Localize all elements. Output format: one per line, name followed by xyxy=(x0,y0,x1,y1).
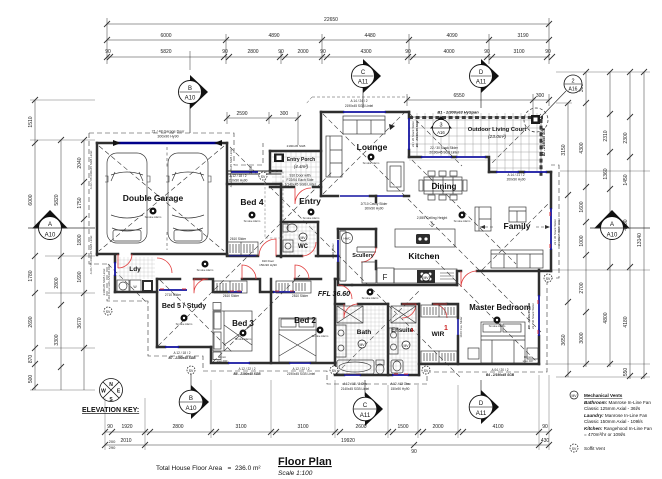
svg-text:2000: 2000 xyxy=(432,424,443,430)
svg-text:22650: 22650 xyxy=(324,17,338,23)
svg-text:Bed 2: Bed 2 xyxy=(294,316,316,325)
svg-text:1450: 1450 xyxy=(623,174,629,185)
svg-text:A 04 / 20 / 2: A 04 / 20 / 2 xyxy=(491,368,508,372)
svg-text:Smoke Alarm: Smoke Alarm xyxy=(176,322,193,326)
svg-text:90: 90 xyxy=(107,424,113,430)
svg-text:A 12 / 22 / 2: A 12 / 22 / 2 xyxy=(238,367,255,371)
svg-text:1800: 1800 xyxy=(77,234,83,245)
svg-text:WIR: WIR xyxy=(432,331,445,338)
svg-text:2310: 2310 xyxy=(603,130,609,141)
svg-text:SV: SV xyxy=(546,277,551,281)
svg-text:MV: MV xyxy=(423,276,429,280)
svg-text:3100: 3100 xyxy=(297,424,308,430)
svg-text:MV: MV xyxy=(359,343,365,347)
svg-text:A 14 / 24 / 2: A 14 / 24 / 2 xyxy=(350,99,367,103)
svg-text:500: 500 xyxy=(28,375,34,384)
svg-text:550: 550 xyxy=(623,368,629,377)
svg-text:A 12 / 18 / 2 Obs: A 12 / 18 / 2 Obs xyxy=(343,382,367,386)
svg-text:2190x45 SGB Lintel: 2190x45 SGB Lintel xyxy=(345,104,374,108)
svg-text:Smoke Alarm: Smoke Alarm xyxy=(454,219,471,223)
svg-text:D: D xyxy=(479,400,484,407)
svg-text:2,555 Ceiling Height: 2,555 Ceiling Height xyxy=(417,216,448,220)
svg-text:5820: 5820 xyxy=(54,194,60,205)
svg-text:2040: 2040 xyxy=(77,157,83,168)
svg-text:A16: A16 xyxy=(437,130,445,135)
svg-text:4480: 4480 xyxy=(364,33,375,39)
svg-text:2/190x45 SGB Lintel: 2/190x45 SGB Lintel xyxy=(429,151,459,155)
svg-text:2700: 2700 xyxy=(579,282,585,293)
svg-text:4090: 4090 xyxy=(446,33,457,39)
svg-text:290: 290 xyxy=(109,445,116,450)
svg-text:Smoke Alarm: Smoke Alarm xyxy=(197,268,214,272)
svg-text:1000: 1000 xyxy=(579,235,585,246)
svg-text:13140: 13140 xyxy=(637,233,643,247)
svg-text:B2 - 2/190x45 SGB: B2 - 2/190x45 SGB xyxy=(542,127,546,156)
svg-text:B4 - 2/190x45 SGB: B4 - 2/190x45 SGB xyxy=(486,373,515,377)
svg-text:3: 3 xyxy=(439,123,442,129)
svg-text:Lounge: Lounge xyxy=(357,142,388,152)
svg-text:870: 870 xyxy=(28,355,34,364)
svg-text:B6 - 2/190x45 SGB: B6 - 2/190x45 SGB xyxy=(415,120,419,147)
svg-text:(4.4m²): (4.4m²) xyxy=(294,164,309,169)
svg-text:Floor Plan: Floor Plan xyxy=(278,456,332,468)
svg-text:90: 90 xyxy=(222,49,228,55)
svg-text:2590: 2590 xyxy=(236,111,247,117)
svg-text:B1 - 2/300x63 HySpan: B1 - 2/300x63 HySpan xyxy=(437,110,479,115)
svg-text:Entry: Entry xyxy=(299,196,321,206)
svg-text:SV: SV xyxy=(106,310,111,314)
svg-text:2300: 2300 xyxy=(623,132,629,143)
svg-text:300x90 Hy90: 300x90 Hy90 xyxy=(365,207,384,211)
svg-text:A 14 / 21 / 2: A 14 / 21 / 2 xyxy=(507,173,524,177)
svg-text:Smoke Alarm: Smoke Alarm xyxy=(145,215,162,219)
svg-text:B7 - 2190x45 SGB: B7 - 2190x45 SGB xyxy=(168,356,196,360)
svg-text:1510: 1510 xyxy=(28,116,34,127)
svg-text:A: A xyxy=(610,222,614,228)
svg-text:5820: 5820 xyxy=(160,49,171,55)
svg-text:3190: 3190 xyxy=(517,33,528,39)
svg-text:MV: MV xyxy=(300,236,306,240)
svg-text:A 12 / 18 / 2: A 12 / 18 / 2 xyxy=(173,351,190,355)
svg-text:step DP: step DP xyxy=(523,359,534,363)
svg-text:200: 200 xyxy=(109,439,116,444)
svg-text:4000: 4000 xyxy=(443,49,454,55)
svg-text:SV: SV xyxy=(189,369,194,373)
svg-text:3100: 3100 xyxy=(235,424,246,430)
svg-text:90: 90 xyxy=(545,49,551,55)
svg-text:FFL 36.60: FFL 36.60 xyxy=(318,291,350,298)
svg-text:1/140x45 SGB Lintel: 1/140x45 SGB Lintel xyxy=(284,183,315,187)
svg-text:2: 2 xyxy=(571,79,574,85)
svg-text:C: C xyxy=(361,70,366,76)
svg-text:90: 90 xyxy=(405,49,411,55)
svg-text:6000: 6000 xyxy=(160,33,171,39)
svg-text:300x90 Hy90: 300x90 Hy90 xyxy=(157,135,178,139)
svg-text:4800: 4800 xyxy=(603,312,609,323)
svg-text:150x90 Hy90: 150x90 Hy90 xyxy=(391,387,410,391)
svg-text:C: C xyxy=(363,402,368,409)
svg-text:2610 Slider: 2610 Slider xyxy=(223,294,240,298)
svg-text:B8 - 2/190x45 SGB: B8 - 2/190x45 SGB xyxy=(527,302,531,329)
svg-text:21 / 48 Garage Door: 21 / 48 Garage Door xyxy=(152,130,186,134)
svg-text:1500: 1500 xyxy=(397,424,408,430)
svg-text:2800: 2800 xyxy=(54,277,60,288)
svg-text:3000: 3000 xyxy=(579,332,585,343)
svg-text:1150: 1150 xyxy=(249,166,253,174)
svg-text:300: 300 xyxy=(280,111,289,117)
svg-text:2800: 2800 xyxy=(247,49,258,55)
svg-text:2190x45 SGB Lintel: 2190x45 SGB Lintel xyxy=(287,372,316,376)
svg-text:150x90 Hy90: 150x90 Hy90 xyxy=(259,263,277,267)
svg-text:ELEVATION KEY:: ELEVATION KEY: xyxy=(82,407,139,414)
svg-text:2/290x45 SGB Lintel: 2/290x45 SGB Lintel xyxy=(557,218,561,246)
svg-text:A10: A10 xyxy=(185,96,196,102)
svg-text:2190x45 SGB: 2190x45 SGB xyxy=(287,144,306,148)
svg-text:Scale 1:100: Scale 1:100 xyxy=(278,470,313,477)
svg-text:A11: A11 xyxy=(476,410,487,417)
svg-text:A11: A11 xyxy=(358,80,369,86)
svg-text:D: D xyxy=(479,70,484,76)
svg-text:410 Door with A/S306 Obs: 410 Door with A/S306 Obs xyxy=(107,264,111,300)
svg-text:A: A xyxy=(48,222,52,228)
svg-text:910 Door with: 910 Door with xyxy=(290,174,311,178)
svg-text:22 / 30 Stack Slider: 22 / 30 Stack Slider xyxy=(531,303,535,329)
svg-text:Bed 4: Bed 4 xyxy=(240,197,263,207)
svg-text:19920: 19920 xyxy=(341,438,355,444)
svg-text:Classic 150mm Axial - 109l/s: Classic 150mm Axial - 109l/s xyxy=(584,419,643,424)
svg-text:Entry Porch: Entry Porch xyxy=(287,157,315,163)
svg-text:Smoke Alarm: Smoke Alarm xyxy=(489,324,506,328)
svg-text:Laundry: Manrose In-Line Fan: Laundry: Manrose In-Line Fan xyxy=(584,413,648,418)
svg-text:1600: 1600 xyxy=(579,201,585,212)
svg-text:A11: A11 xyxy=(360,412,371,419)
svg-text:Dining: Dining xyxy=(432,182,457,191)
svg-text:2690: 2690 xyxy=(28,316,34,327)
svg-text:200x90 Hy90: 200x90 Hy90 xyxy=(229,179,248,183)
svg-text:Smoke Alarm: Smoke Alarm xyxy=(244,219,261,223)
svg-text:B: B xyxy=(189,395,193,402)
svg-text:2010: 2010 xyxy=(120,438,131,444)
svg-text:1780: 1780 xyxy=(28,270,34,281)
svg-text:B: B xyxy=(188,86,192,92)
svg-text:1750: 1750 xyxy=(77,197,83,208)
svg-text:4180: 4180 xyxy=(623,316,629,327)
svg-text:MV: MV xyxy=(403,344,409,348)
svg-text:2190x45 SGB Lintel: 2190x45 SGB Lintel xyxy=(102,268,106,295)
svg-text:Total House Floor Area = 23: Total House Floor Area = 236.0 m² xyxy=(156,465,261,472)
svg-text:W: W xyxy=(101,389,106,395)
svg-text:1690: 1690 xyxy=(77,271,83,282)
svg-text:6550: 6550 xyxy=(453,93,464,99)
svg-text:Bath: Bath xyxy=(357,329,371,336)
svg-text:SV: SV xyxy=(572,447,577,451)
svg-text:2/710 Cavity Slider: 2/710 Cavity Slider xyxy=(361,202,389,206)
svg-text:B5 - 2190x45 SGB: B5 - 2190x45 SGB xyxy=(233,372,261,376)
svg-text:Smoke Alarm: Smoke Alarm xyxy=(235,337,252,341)
svg-text:2810 Slider: 2810 Slider xyxy=(292,294,309,298)
svg-text:HWC: HWC xyxy=(343,237,351,241)
svg-text:Bed 5 / Study: Bed 5 / Study xyxy=(162,303,206,310)
svg-text:Double Garage: Double Garage xyxy=(123,193,184,203)
svg-text:1920: 1920 xyxy=(121,424,132,430)
svg-text:4300: 4300 xyxy=(360,49,371,55)
svg-text:SV: SV xyxy=(424,369,429,373)
svg-text:A 12 / 22 / 2: A 12 / 22 / 2 xyxy=(292,367,309,371)
svg-text:Scullery: Scullery xyxy=(352,253,374,259)
svg-text:Soffit Vent: Soffit Vent xyxy=(584,446,606,451)
svg-text:4100: 4100 xyxy=(492,424,503,430)
svg-text:Smoke Alarm: Smoke Alarm xyxy=(303,216,320,220)
svg-text:Bathroom: Manrose In-Line Fan: Bathroom: Manrose In-Line Fan xyxy=(584,400,651,405)
svg-text:Outdoor Living Court: Outdoor Living Court xyxy=(468,127,527,133)
svg-text:Kitchen: Kitchen xyxy=(408,251,439,261)
svg-text:2610 Slider: 2610 Slider xyxy=(230,237,247,241)
svg-text:A 22 / 08 2/90x45 SGB Lintel: A 22 / 08 2/90x45 SGB Lintel xyxy=(89,150,93,189)
svg-text:3100: 3100 xyxy=(513,49,524,55)
svg-text:3650: 3650 xyxy=(561,334,567,345)
svg-text:Bed 3: Bed 3 xyxy=(232,319,254,328)
svg-text:90: 90 xyxy=(320,49,326,55)
svg-text:300: 300 xyxy=(536,93,545,99)
svg-text:(23.0m²): (23.0m²) xyxy=(488,134,507,140)
svg-text:Mechanical Vents: Mechanical Vents xyxy=(584,393,623,398)
svg-text:A16: A16 xyxy=(569,87,578,93)
svg-text:4300: 4300 xyxy=(579,142,585,153)
svg-text:90: 90 xyxy=(105,49,111,55)
svg-text:A 12 / 12 Obs: A 12 / 12 Obs xyxy=(390,382,410,386)
svg-text:= 470m³/hr or 109l/s: = 470m³/hr or 109l/s xyxy=(584,432,626,437)
svg-text:Ldy: Ldy xyxy=(129,266,141,273)
svg-text:3300: 3300 xyxy=(54,334,60,345)
svg-text:2000: 2000 xyxy=(297,49,308,55)
svg-text:3670: 3670 xyxy=(77,317,83,328)
svg-text:90: 90 xyxy=(542,424,548,430)
svg-text:A 12 / 18 / 2: A 12 / 18 / 2 xyxy=(229,174,246,178)
svg-text:Smoke Alarm: Smoke Alarm xyxy=(362,296,379,300)
svg-text:6000: 6000 xyxy=(28,194,34,205)
svg-text:N: N xyxy=(109,382,113,388)
svg-text:Classic 125mm Axial - 36l/s: Classic 125mm Axial - 36l/s xyxy=(584,406,641,411)
svg-text:22 / 30 Stack Slider: 22 / 30 Stack Slider xyxy=(430,146,459,150)
svg-text:A10: A10 xyxy=(185,405,197,412)
svg-text:2410 Slider: 2410 Slider xyxy=(331,243,335,258)
svg-text:Master Bedroom: Master Bedroom xyxy=(469,303,531,312)
svg-text:1360: 1360 xyxy=(603,168,609,179)
svg-text:step DP: step DP xyxy=(217,359,228,363)
svg-text:2140x45 SGB Lintel: 2140x45 SGB Lintel xyxy=(341,387,370,391)
svg-text:A11: A11 xyxy=(476,80,487,86)
svg-text:Smoke Alarm: Smoke Alarm xyxy=(363,161,380,165)
svg-text:Family: Family xyxy=(504,221,531,231)
svg-text:4: 4 xyxy=(411,328,414,334)
svg-text:SV: SV xyxy=(332,369,337,373)
svg-text:A10: A10 xyxy=(45,233,56,239)
svg-text:1100 Cav Slider: 1100 Cav Slider xyxy=(459,316,463,337)
svg-text:Kitchen: Rangehood In-Line Fan: Kitchen: Rangehood In-Line Fan xyxy=(584,426,652,431)
svg-text:2710 Slider: 2710 Slider xyxy=(165,293,182,297)
svg-text:F22/04 Each Side: F22/04 Each Side xyxy=(287,178,314,182)
svg-text:WC: WC xyxy=(298,244,309,250)
svg-text:430: 430 xyxy=(541,438,550,444)
svg-text:Smoke Alarm: Smoke Alarm xyxy=(312,334,329,338)
svg-text:90: 90 xyxy=(411,449,417,455)
svg-text:2800: 2800 xyxy=(172,424,183,430)
svg-text:A 20 / 18 2/90x45 SGB Lintel: A 20 / 18 2/90x45 SGB Lintel xyxy=(89,235,93,274)
svg-text:4890: 4890 xyxy=(268,33,279,39)
svg-text:200x90 Hy90: 200x90 Hy90 xyxy=(507,178,526,182)
svg-text:A10: A10 xyxy=(607,233,618,239)
svg-text:MV: MV xyxy=(571,394,577,398)
svg-text:3150: 3150 xyxy=(561,144,567,155)
svg-text:SV: SV xyxy=(261,175,266,179)
svg-text:F: F xyxy=(383,273,388,282)
svg-text:1: 1 xyxy=(444,325,448,332)
